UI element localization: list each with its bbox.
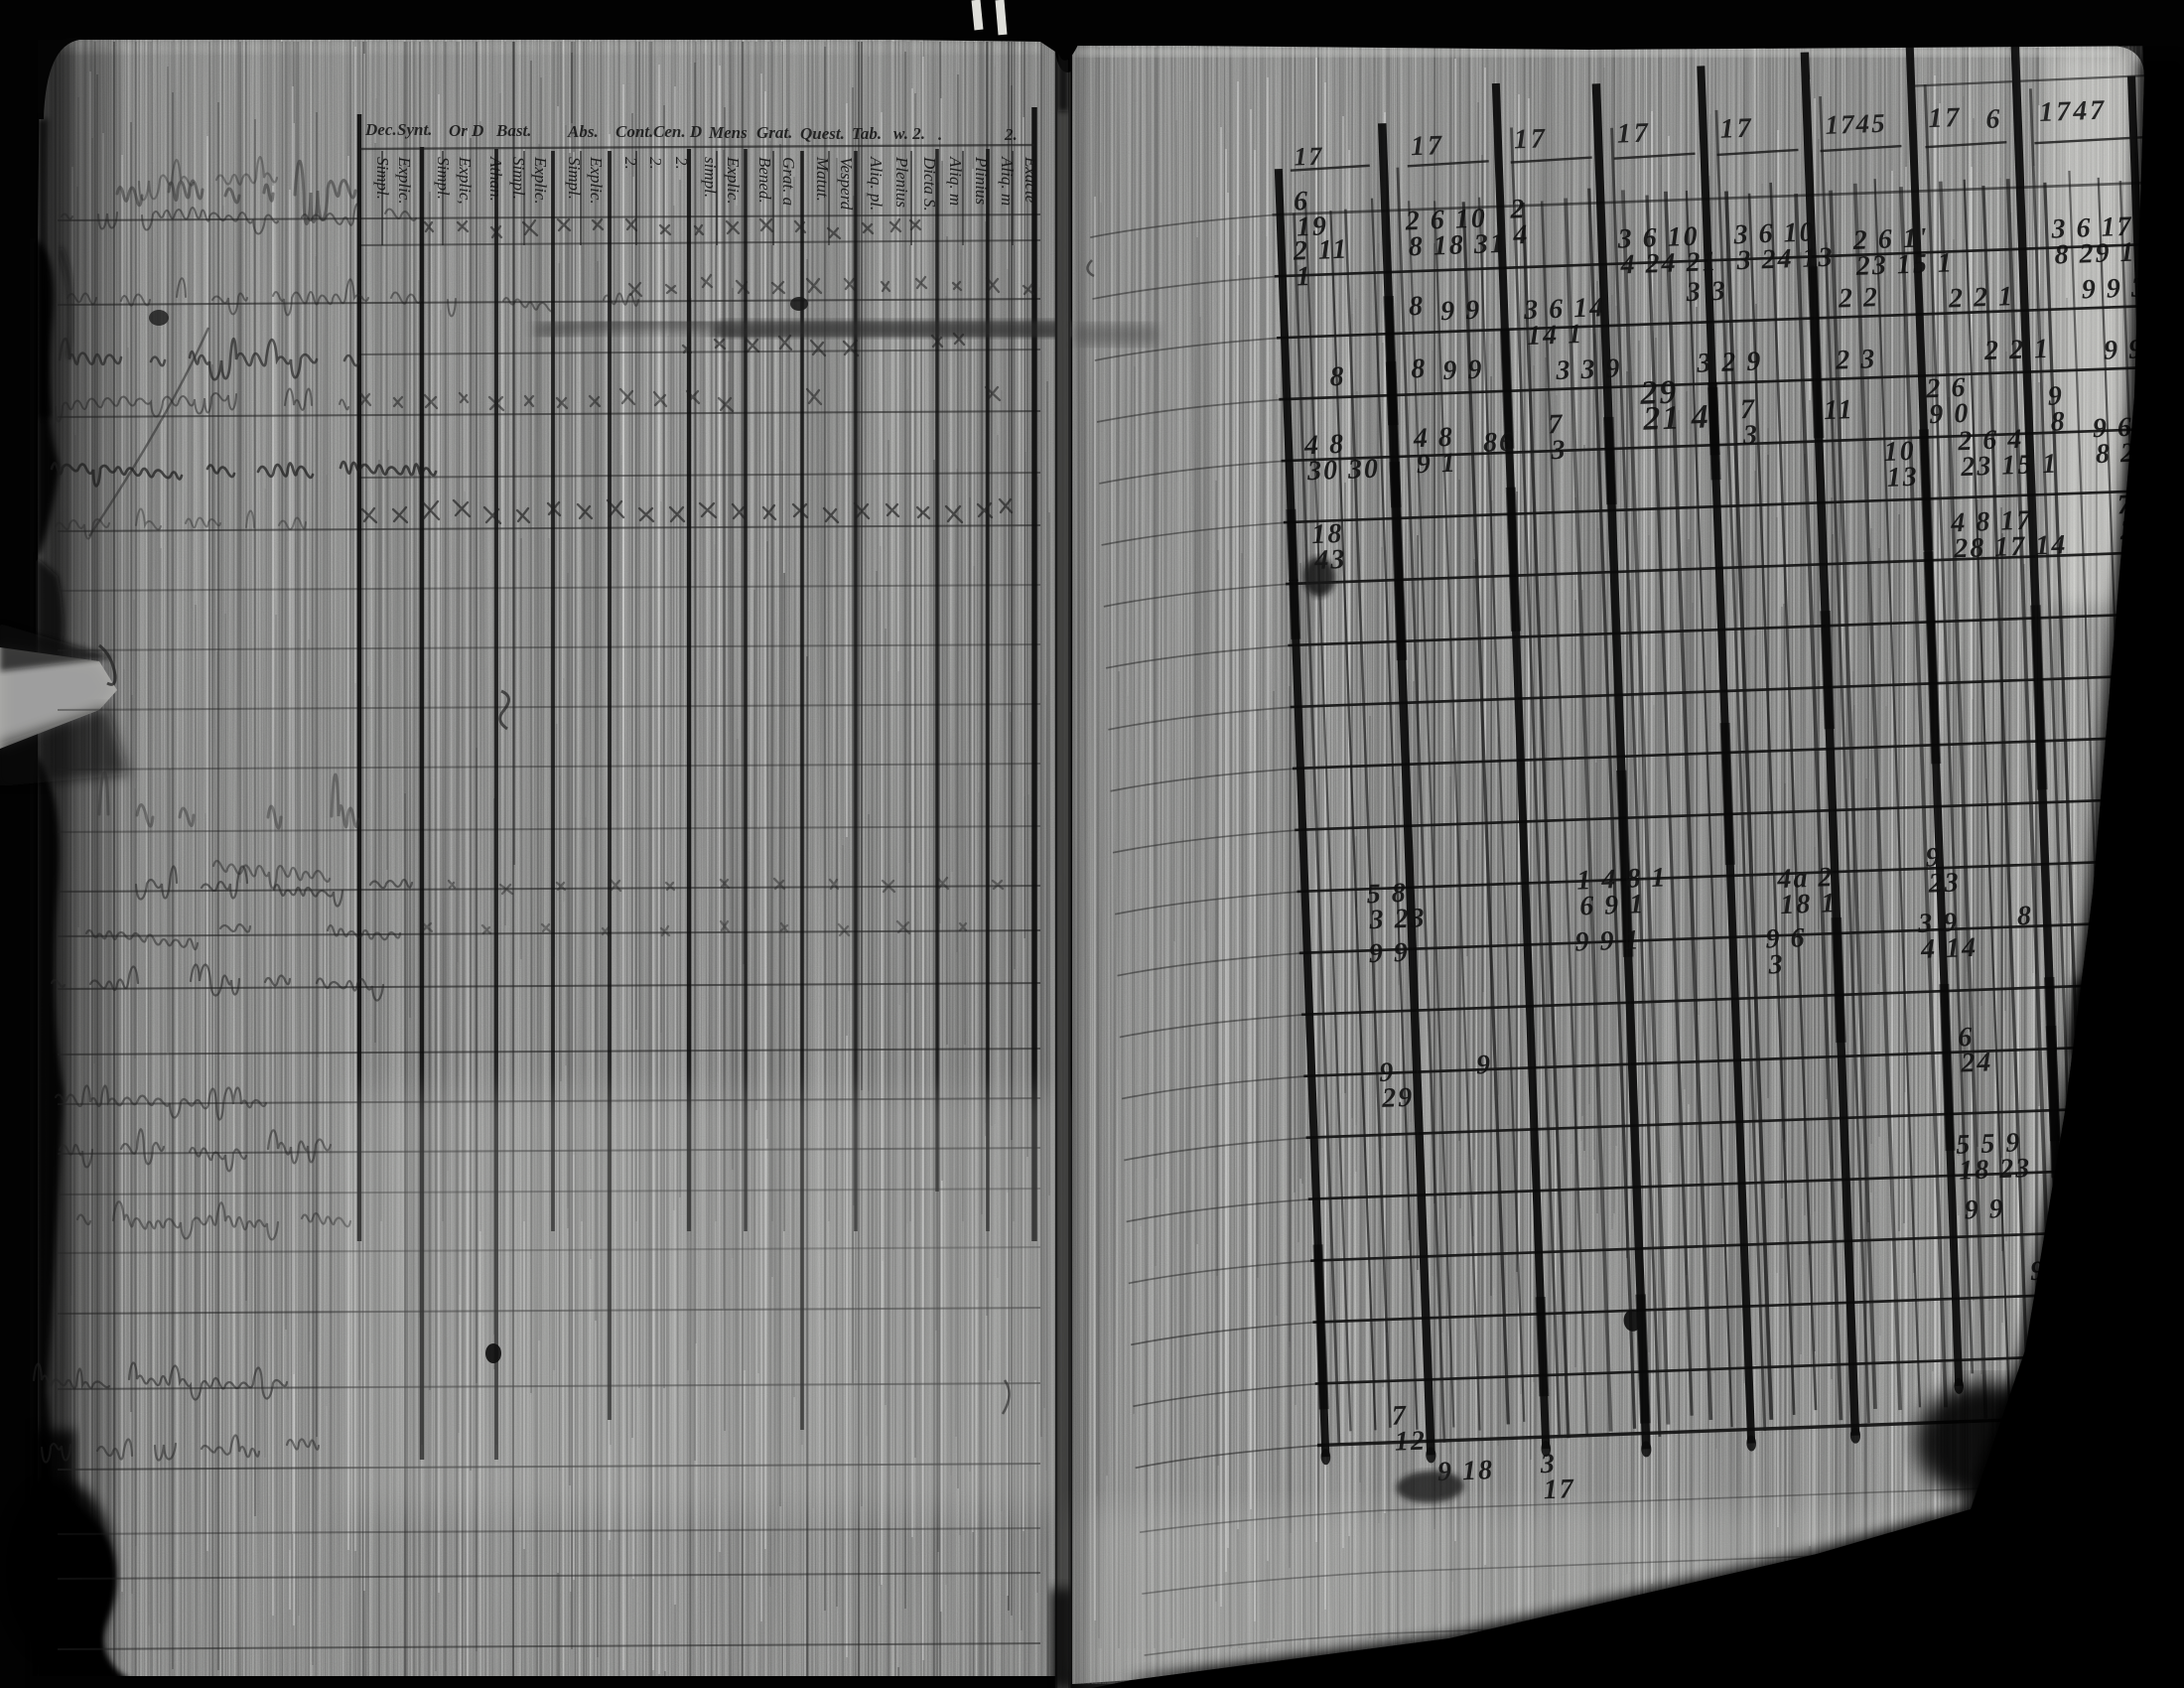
svg-text:17: 17 [1719,113,1754,145]
svg-text:simpl.: simpl. [701,157,720,198]
svg-text:2.: 2. [621,157,640,170]
svg-text:Explic.: Explic. [531,156,550,205]
svg-text:Dec.: Dec. [364,120,397,139]
svg-text:8: 8 [1329,361,1346,393]
svg-text:9 9: 9 9 [1440,295,1482,327]
svg-text:8 29 1: 8 29 1 [2054,237,2136,271]
svg-text:3 3: 3 3 [1685,276,1727,309]
svg-text:.: . [938,125,942,144]
svg-text:Or D: Or D [449,121,483,140]
svg-text:17: 17 [1411,130,1445,162]
svg-text:8: 8 [1408,291,1425,323]
svg-text:Tab.: Tab. [852,124,882,143]
svg-text:Explic,: Explic, [456,156,475,205]
svg-text:30 30: 30 30 [1305,454,1380,488]
svg-text:11: 11 [1824,394,1855,426]
svg-text:1: 1 [1296,261,1312,293]
svg-text:Dicta S.: Dicta S. [920,156,939,211]
svg-text:17: 17 [1616,117,1651,149]
svg-text:Abs.: Abs. [567,122,599,141]
svg-text:3: 3 [1741,420,1759,452]
svg-text:Plenius: Plenius [892,156,911,208]
svg-text:Bast.: Bast. [495,121,531,140]
svg-text:8 18 31: 8 18 31 [1408,228,1506,263]
svg-text:8: 8 [2050,406,2067,438]
svg-text:Grat.: Grat. [756,123,792,142]
svg-text:3: 3 [1550,435,1568,467]
svg-text:Explic.: Explic. [587,156,606,205]
svg-text:8: 8 [1411,353,1428,385]
svg-text:Aliq. m: Aliq. m [946,156,965,206]
svg-text:Cen. D: Cen. D [653,122,702,141]
svg-text:Explic.: Explic. [724,156,743,205]
svg-text:Synt.: Synt. [397,120,432,139]
svg-text:Simpl.: Simpl. [434,157,453,200]
svg-text:Bened.: Bened. [755,157,774,204]
svg-text:18 1: 18 1 [1780,888,1838,920]
svg-text:6: 6 [1985,103,2000,134]
svg-text:86: 86 [1483,427,1516,459]
svg-text:28 17 14: 28 17 14 [1953,529,2068,564]
svg-text:Plinius: Plinius [972,156,991,206]
svg-text:Exacte: Exacte [1022,156,1040,204]
svg-text:Aliq. m: Aliq. m [998,156,1017,206]
svg-text:Quest.: Quest. [800,124,845,143]
svg-text:2 2 1: 2 2 1 [1982,334,2050,366]
svg-text:17: 17 [1513,123,1548,155]
svg-text:23 15 1: 23 15 1 [1854,247,1954,282]
svg-text:17: 17 [1543,1474,1575,1505]
svg-text:3 24 13: 3 24 13 [1735,242,1835,277]
svg-text:13: 13 [1886,462,1919,493]
svg-text:21 4: 21 4 [1642,398,1711,437]
svg-text:12: 12 [1394,1426,1427,1458]
svg-text:2 3: 2 3 [1835,344,1877,376]
svg-text:9 9: 9 9 [1442,354,1484,386]
svg-text:2.: 2. [1004,125,1018,144]
svg-text:9 1: 9 1 [1416,448,1457,480]
svg-text:1747: 1747 [2039,95,2108,128]
svg-text:23: 23 [1927,867,1961,899]
svg-text:2 2 1: 2 2 1 [1948,281,2015,314]
svg-text:17: 17 [1294,141,1324,171]
svg-text:4 24 21: 4 24 21 [1619,246,1718,281]
svg-text:Simpl.: Simpl. [373,157,392,200]
svg-text:4: 4 [1512,219,1530,251]
svg-text:9 9: 9 9 [1964,1194,2005,1225]
svg-text:Aliq. pl.: Aliq. pl. [867,156,886,211]
svg-text:Athan.: Athan. [486,156,505,202]
svg-text:Simpl.: Simpl. [509,157,528,200]
svg-text:w. 2.: w. 2. [893,124,925,143]
svg-text:24: 24 [1960,1047,1993,1078]
svg-text:Matut.: Matut. [813,156,832,202]
svg-text:2.: 2. [672,157,691,170]
svg-text:17: 17 [1928,102,1963,134]
svg-text:2 2: 2 2 [1837,282,1879,315]
svg-text:3 2 9: 3 2 9 [1696,346,1763,378]
svg-text:18 23: 18 23 [1959,1153,2032,1187]
svg-text:23 15 1: 23 15 1 [1960,449,2059,484]
svg-text:Vesperd: Vesperd [837,157,856,211]
svg-text:Cont.: Cont. [615,122,653,141]
svg-text:Mens: Mens [708,123,748,142]
svg-text:Explic.: Explic. [395,156,414,205]
svg-text:Simpl.: Simpl. [565,157,584,200]
svg-text:Grat. a: Grat. a [779,157,798,206]
svg-text:2.: 2. [646,157,665,170]
svg-text:14 1: 14 1 [1527,319,1584,352]
svg-text:1745: 1745 [1825,108,1887,140]
svg-text:9 9: 9 9 [1368,937,1410,969]
svg-text:29: 29 [1381,1082,1415,1114]
